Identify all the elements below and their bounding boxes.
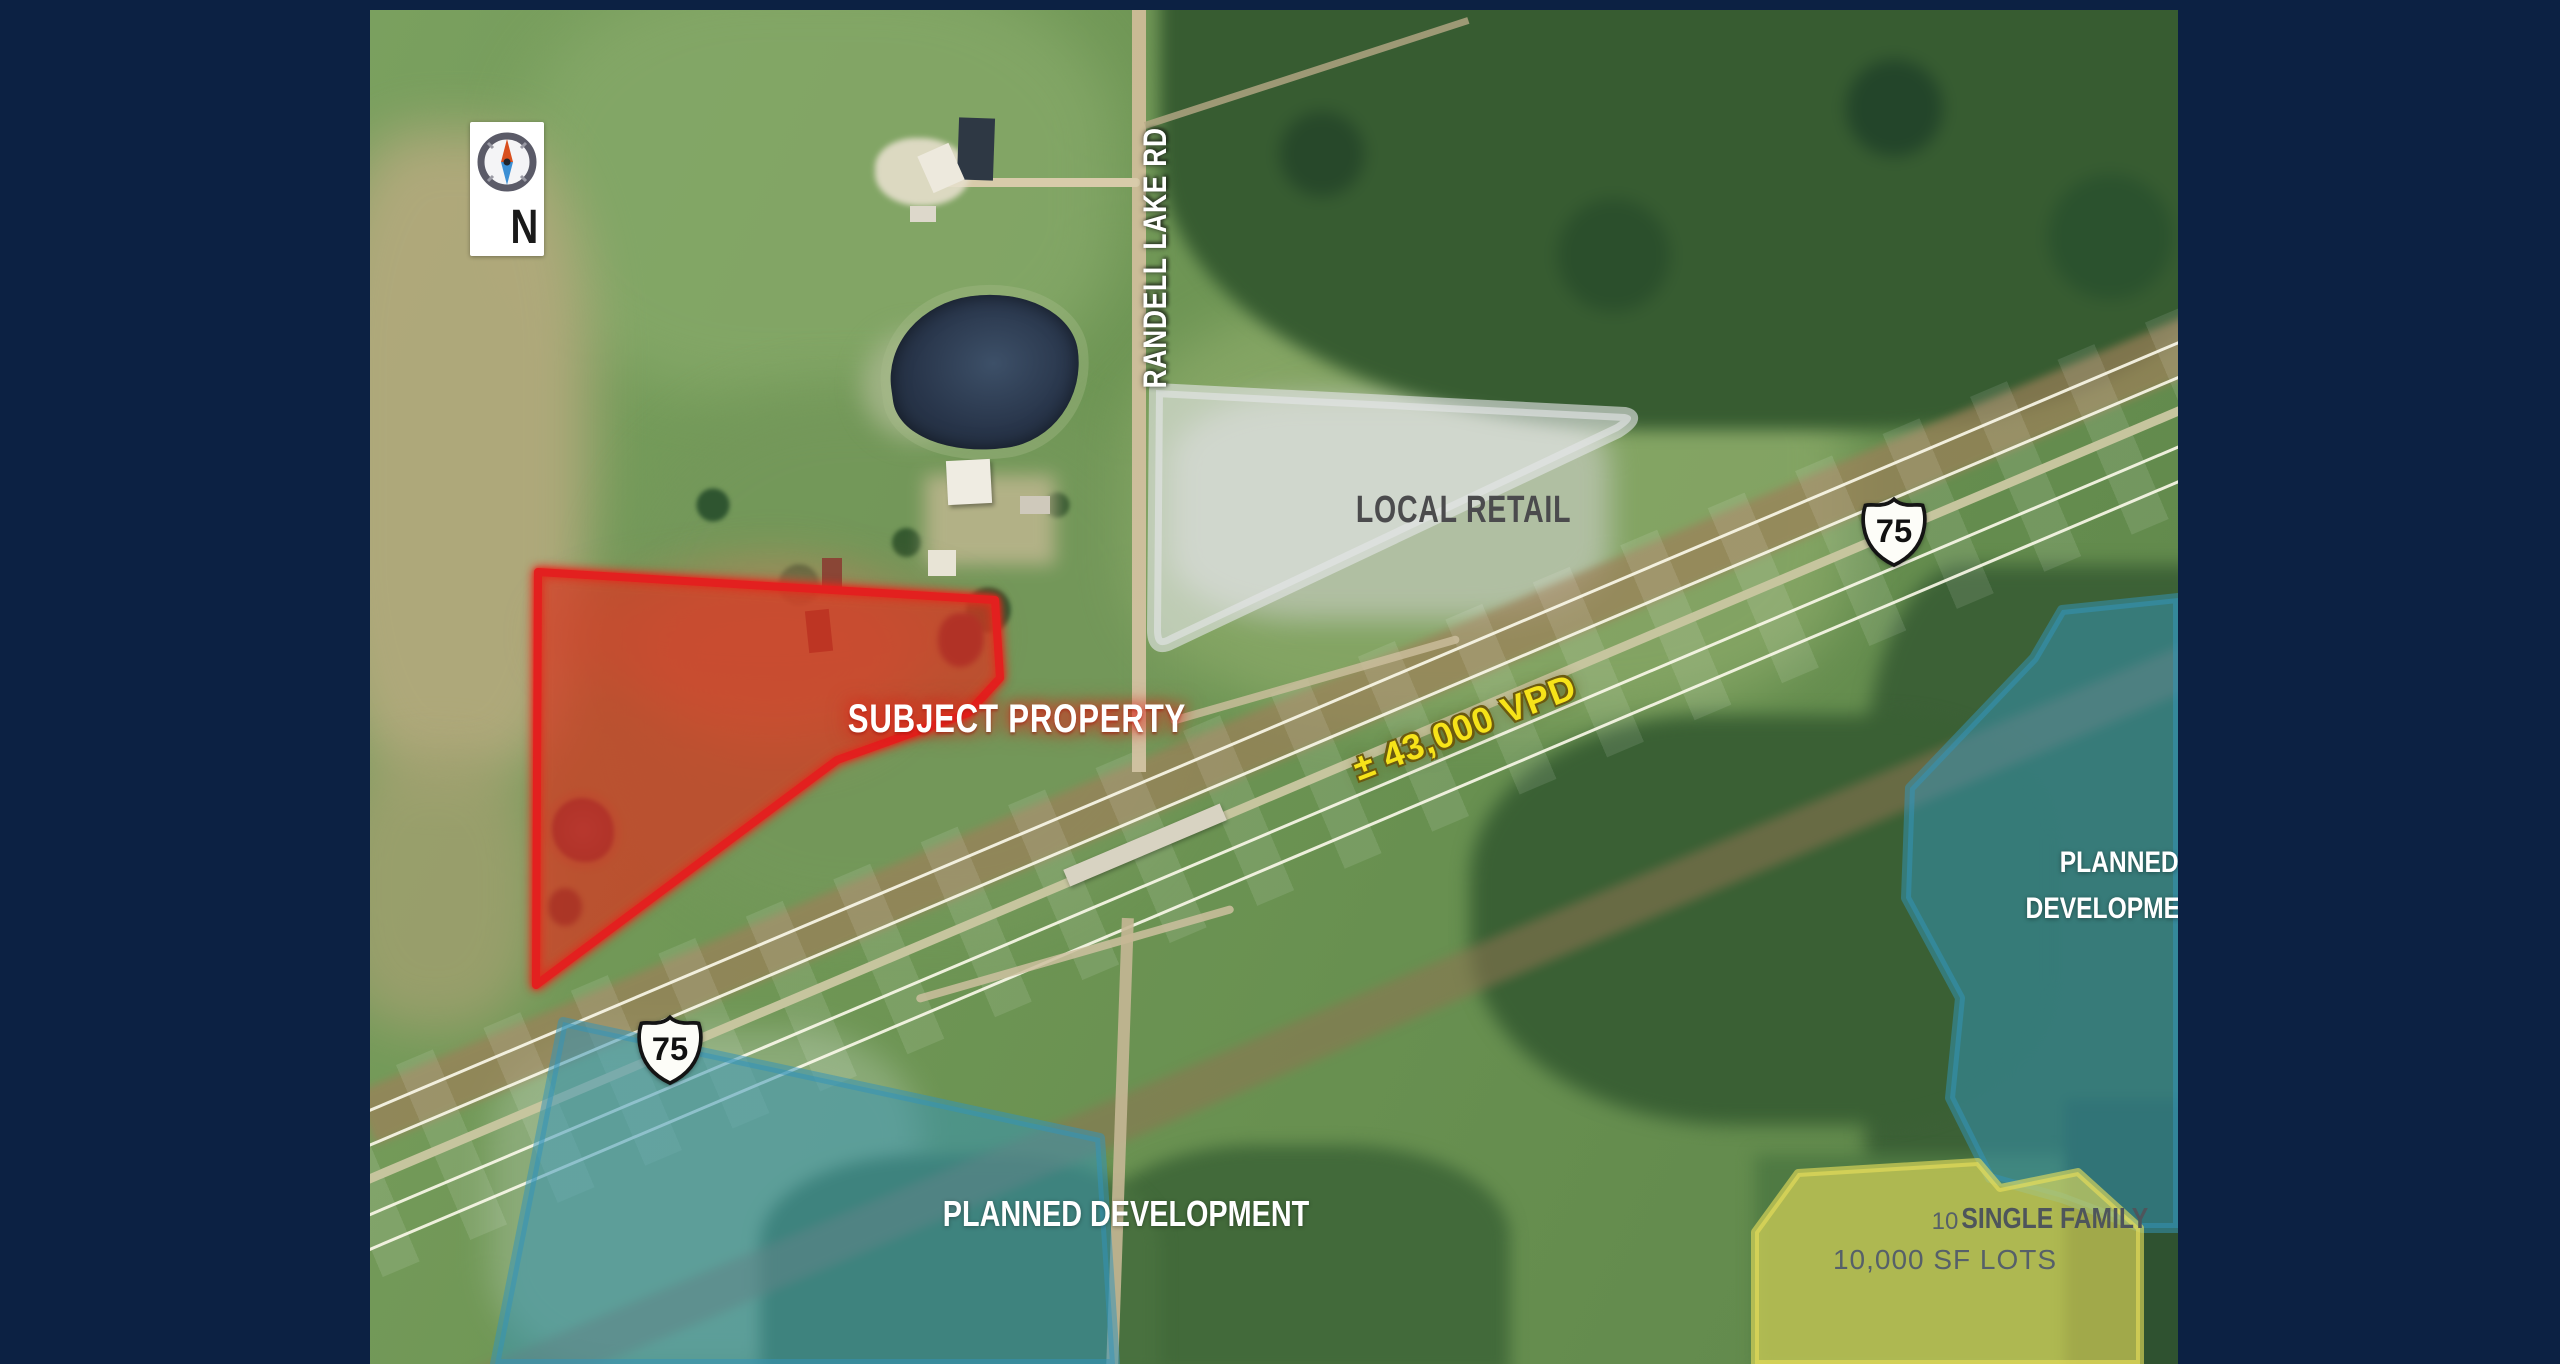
zone-overlays bbox=[370, 10, 2178, 1364]
randell-lake-rd-label-text: RANDELL LAKE RD bbox=[1137, 127, 1174, 388]
route-number: 75 bbox=[652, 1030, 688, 1067]
subject-property-label-text: SUBJECT PROPERTY bbox=[848, 697, 1186, 742]
pd-bottom-text: PLANNED DEVELOPMENT bbox=[943, 1193, 1309, 1235]
north-letter-text: N bbox=[510, 200, 538, 255]
us-75-shield-icon: 75 bbox=[1861, 496, 1927, 568]
local-retail-label-text: LOCAL RETAIL bbox=[1356, 489, 1571, 532]
north-arrow: N bbox=[470, 122, 544, 256]
compass-rose-icon bbox=[475, 130, 539, 194]
single-family-label-block: SINGLE FAMILY 10 10,000 SF LOTS bbox=[1833, 1202, 2057, 1278]
pd-right-line1: PLANNED bbox=[2026, 840, 2178, 886]
navy-frame: SUBJECT PROPERTY LOCAL RETAIL RANDELL LA… bbox=[0, 0, 2560, 1364]
us-75-shield-icon: 75 bbox=[637, 1014, 703, 1086]
route-number: 75 bbox=[1876, 512, 1912, 549]
single-family-title-text: SINGLE FAMILY bbox=[1961, 1202, 2148, 1236]
single-family-lot-size: 10,000 SF LOTS bbox=[1833, 1242, 2057, 1278]
planned-development-right-lines: PLANNED DEVELOPMENT bbox=[2026, 840, 2178, 932]
subject-property-zone bbox=[536, 572, 1000, 985]
pd-right-line2: DEVELOPMENT bbox=[2026, 886, 2178, 932]
aerial-map: SUBJECT PROPERTY LOCAL RETAIL RANDELL LA… bbox=[370, 10, 2178, 1364]
